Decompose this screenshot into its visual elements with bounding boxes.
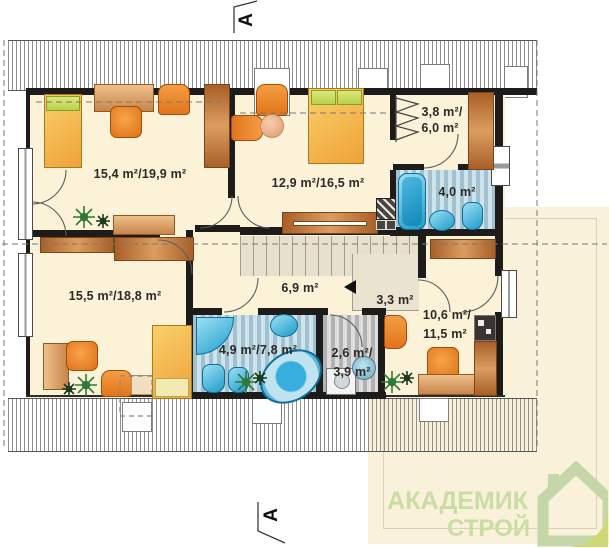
- flue-vent: [376, 220, 386, 230]
- wall-segment: [393, 164, 424, 170]
- bidet: [228, 367, 249, 393]
- section-marker-bottom: A: [261, 508, 283, 522]
- window: [18, 253, 33, 337]
- sideboard: [282, 212, 378, 234]
- room-label-stair-landing: 3,3 m²: [376, 293, 413, 307]
- pouf: [131, 375, 153, 395]
- bathtub: [398, 173, 426, 230]
- room-label-wardrobe-line1: 3,8 m²/: [422, 105, 463, 119]
- wardrobe-cabinet: [204, 84, 230, 168]
- sink: [429, 210, 455, 231]
- toilet: [202, 364, 225, 393]
- cabinet-detail: [478, 320, 484, 326]
- hall-cabinet: [430, 239, 496, 259]
- wall-segment: [26, 94, 30, 395]
- watermark-brand-line2: СТРОЙ: [375, 515, 530, 543]
- bed-blanket: [155, 378, 189, 397]
- cabinet-detail: [486, 329, 491, 334]
- armchair: [384, 315, 407, 349]
- room-label-laundry-line2: 3,9 m²: [333, 365, 370, 379]
- window: [18, 148, 33, 240]
- wall-segment: [495, 94, 503, 148]
- room-label-bedroom-top-middle: 12,9 m²/16,5 m²: [272, 176, 365, 190]
- wall-segment: [390, 94, 396, 140]
- bed-pillow: [311, 90, 336, 105]
- floor-plan-page: АКАДЕМИК СТРОЙ: [0, 0, 609, 548]
- bed-pillow: [46, 96, 80, 111]
- sink: [270, 314, 298, 337]
- desk: [113, 215, 175, 235]
- office-chair: [66, 341, 98, 371]
- wall-segment: [258, 308, 328, 315]
- roof-window: [419, 398, 449, 422]
- balcony-door-symbol: [501, 270, 517, 318]
- wall-segment: [418, 235, 426, 278]
- room-label-wardrobe-line2: 6,0 m²: [421, 121, 458, 135]
- room-label-bathroom-small: 4,0 m²: [438, 185, 475, 199]
- armchair: [158, 84, 190, 115]
- chimney-flue: [376, 198, 396, 220]
- wardrobe-cabinet: [474, 341, 497, 396]
- bathtub-basin: [402, 177, 422, 226]
- sideboard: [114, 237, 194, 261]
- room-label-bedroom-bottom-left: 15,5 m²/18,8 m²: [69, 289, 162, 303]
- wall-segment: [362, 308, 386, 315]
- room-label-bedroom-bottom-right-line1: 10,6 m²/: [423, 308, 471, 322]
- armchair: [231, 115, 263, 141]
- wall-segment: [186, 308, 222, 315]
- room-label-laundry-line1: 2,6 m²/: [332, 346, 373, 360]
- side-table: [260, 114, 284, 138]
- flue-vent: [386, 220, 396, 230]
- armchair: [256, 84, 288, 116]
- media-cabinet: [474, 315, 496, 341]
- house-icon: [533, 461, 608, 547]
- roof-window: [122, 402, 152, 432]
- toilet: [462, 202, 483, 230]
- wardrobe-cabinet: [468, 92, 494, 170]
- sideboard-handle: [293, 221, 367, 226]
- room-label-bathroom-large: 4,9 m²/7,8 m²: [219, 343, 297, 357]
- section-marker-top: A: [236, 13, 258, 27]
- sideboard: [40, 237, 114, 253]
- watermark-brand-line1: АКАДЕМИК: [375, 487, 528, 516]
- desk: [418, 374, 476, 395]
- bed-pillow: [337, 90, 362, 105]
- room-label-bedroom-bottom-right-line2: 11,5 m²: [423, 327, 467, 341]
- armchair: [101, 370, 132, 397]
- room-label-bedroom-top-left: 15,4 m²/19,9 m²: [94, 167, 187, 181]
- room-label-hall: 6,9 m²: [281, 281, 318, 295]
- wall-segment: [195, 225, 240, 232]
- office-chair: [110, 106, 142, 138]
